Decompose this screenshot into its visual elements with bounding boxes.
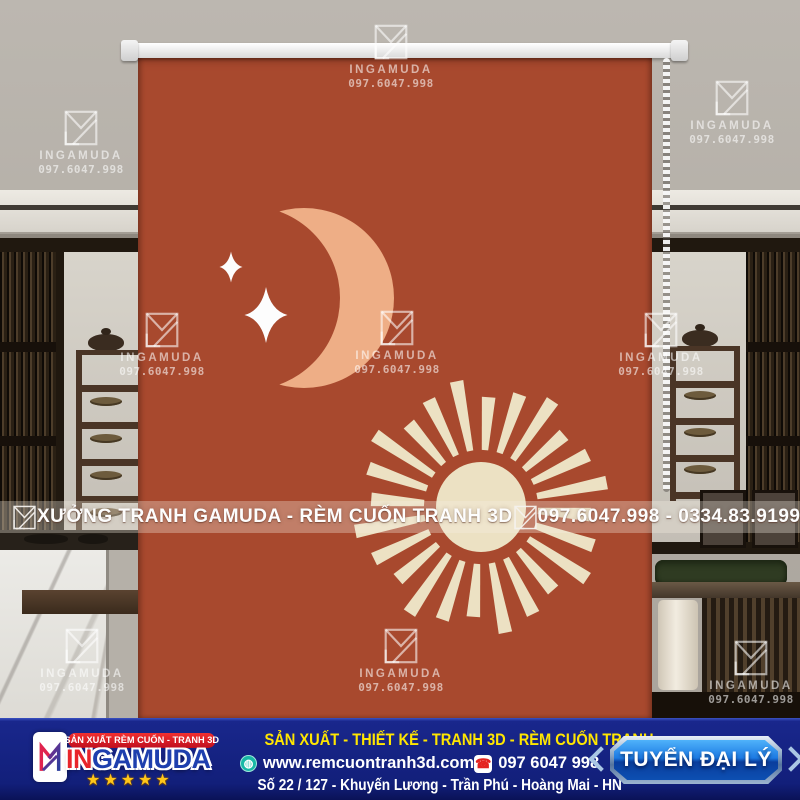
footer-logo-card	[33, 732, 67, 782]
footer-contact-row: ◍ www.remcuontranh3d.com ☎ 097 6047 998	[240, 754, 590, 773]
banner-hotline-text: 097.6047.998 - 0334.83.9199	[538, 506, 800, 528]
lattice-rail	[0, 342, 56, 352]
bowl	[90, 397, 122, 406]
right-base	[650, 692, 800, 718]
footer-bar: SẢN XUẤT RÈM CUỐN - TRANH 3D INGAMUDA ★★…	[0, 718, 800, 800]
lattice-rail	[0, 436, 56, 446]
cta-button[interactable]: TUYỂN ĐẠI LÝ	[614, 740, 778, 780]
ingamuda-m-logo	[37, 738, 63, 776]
footer-address: Số 22 / 127 - Khuyến Lương - Trần Phú - …	[257, 777, 572, 795]
bowl	[684, 428, 716, 437]
website-text: www.remcuontranh3d.com	[263, 754, 474, 773]
footer-brand: INGAMUDA	[66, 746, 211, 773]
workshop-banner: XƯỞNG TRANH GAMUDA - RÈM CUỐN TRANH 3D 0…	[0, 501, 800, 533]
hotline-text: 097 6047 998	[498, 754, 599, 773]
crescent-moon	[214, 208, 394, 388]
bowl	[90, 434, 122, 443]
bowl	[684, 465, 716, 474]
cta-button-frame[interactable]: TUYỂN ĐẠI LÝ	[610, 736, 782, 784]
wood-slats	[702, 598, 800, 698]
teapot	[88, 334, 124, 351]
teapot	[682, 330, 718, 347]
bowl	[90, 471, 122, 480]
rating-stars: ★★★★★	[86, 770, 173, 790]
bowl	[684, 391, 716, 400]
roller-bar	[124, 43, 686, 58]
wood-shelf-slab	[22, 590, 140, 614]
roller-bracket-right	[671, 40, 688, 61]
blind-pull-chain[interactable]	[663, 58, 670, 492]
footer-services-line: SẢN XUẤT - THIẾT KẾ - TRANH 3D - RÈM CUỐ…	[265, 730, 566, 750]
left-shelf-opening	[64, 252, 142, 542]
hotline-item: ☎ 097 6047 998	[474, 754, 599, 773]
lattice-rail	[746, 436, 800, 446]
cta-wrap: TUYỂN ĐẠI LÝ	[596, 736, 796, 784]
ingamuda-logo-icon	[12, 504, 37, 531]
ingamuda-logo-icon	[513, 504, 538, 531]
roller-bracket-left	[121, 40, 138, 61]
lattice-rail	[746, 342, 800, 352]
phone-icon: ☎	[474, 755, 492, 773]
tiered-shelf	[670, 346, 740, 501]
left-lattice-screen	[0, 252, 56, 542]
workshop-banner-text: XƯỞNG TRANH GAMUDA - RÈM CUỐN TRANH 3D	[37, 506, 513, 528]
globe-icon: ◍	[240, 755, 257, 772]
decor-item	[24, 534, 68, 544]
website-item: ◍ www.remcuontranh3d.com	[240, 754, 474, 773]
blind-pattern	[138, 56, 652, 718]
left-counter-top	[0, 530, 142, 550]
decor-item	[78, 534, 108, 544]
right-counter	[650, 582, 800, 598]
cylinder-lamp	[658, 600, 698, 690]
